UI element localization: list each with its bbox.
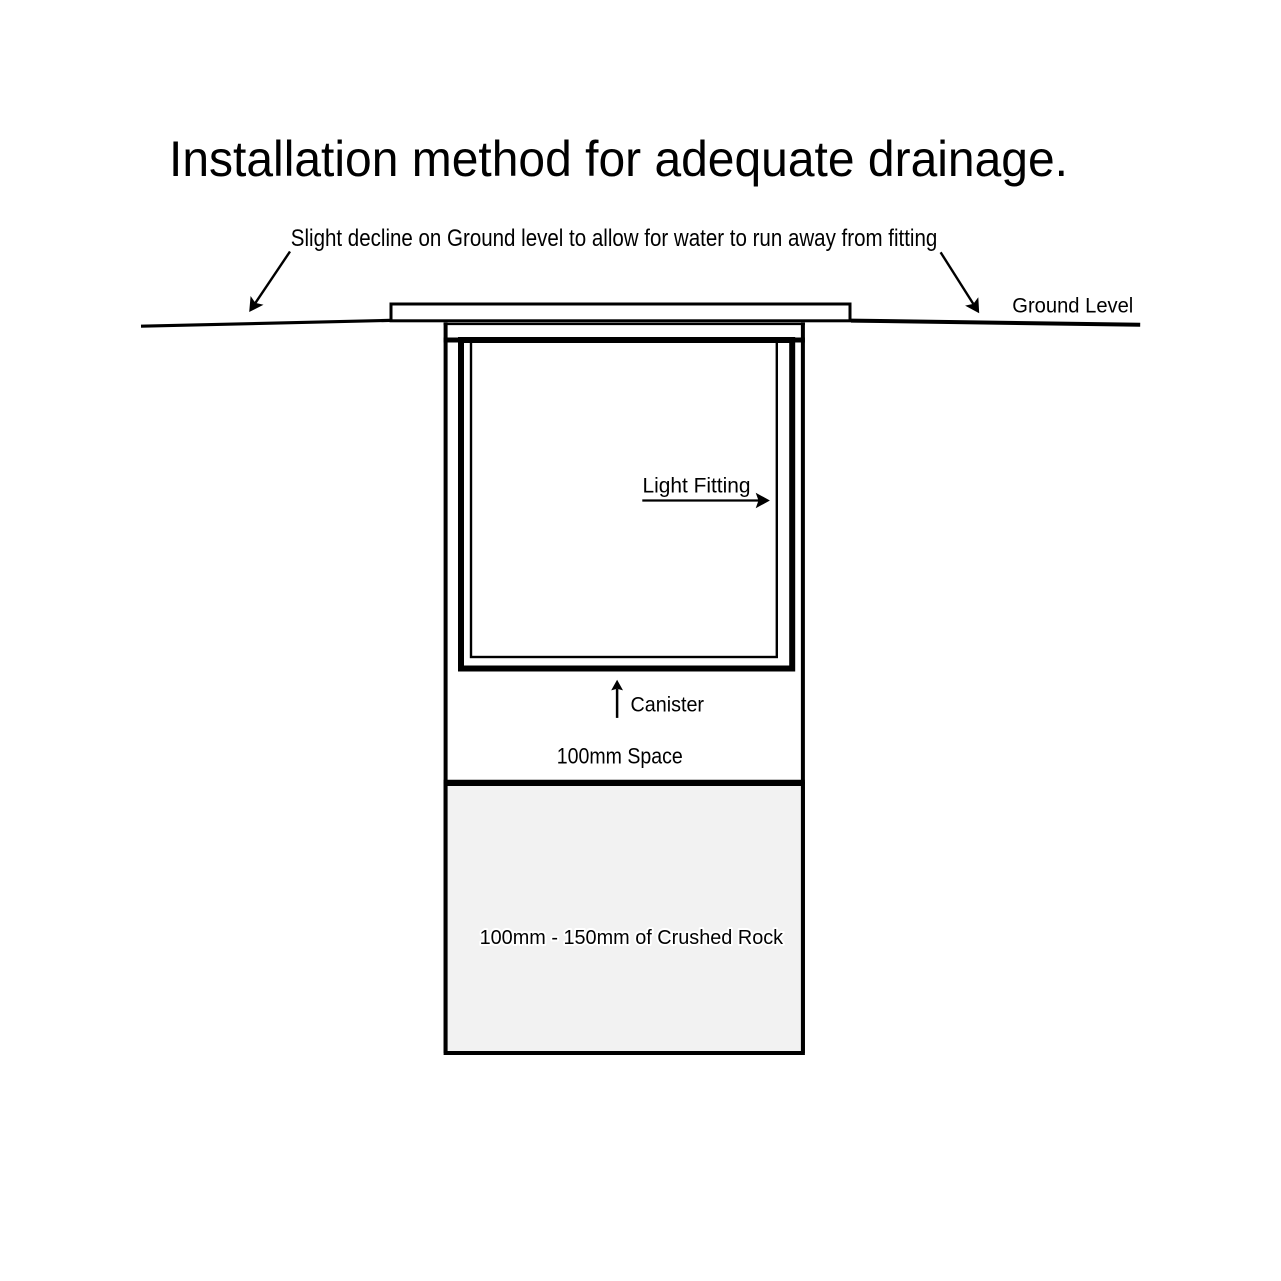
svg-text:Installation method for adequa: Installation method for adequate drainag… <box>169 131 1068 187</box>
svg-text:Ground Level: Ground Level <box>1012 295 1133 318</box>
svg-text:100mm - 150mm of Crushed Rock: 100mm - 150mm of Crushed Rock <box>480 926 784 949</box>
svg-text:Canister: Canister <box>631 693 705 717</box>
svg-text:Slight decline on Ground level: Slight decline on Ground level to allow … <box>291 225 938 252</box>
svg-text:100mm Space: 100mm Space <box>557 744 683 769</box>
svg-text:Light Fitting: Light Fitting <box>643 472 751 497</box>
